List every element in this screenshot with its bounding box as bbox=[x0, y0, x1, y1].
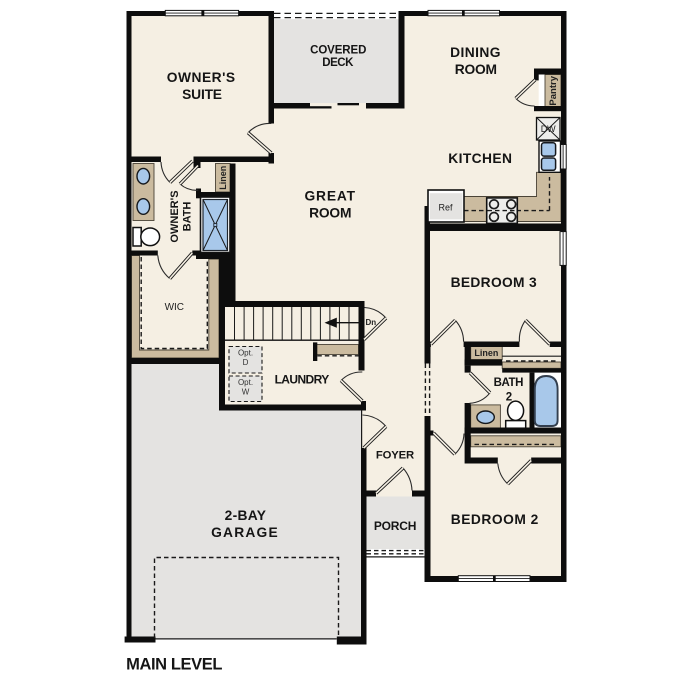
svg-text:2: 2 bbox=[506, 392, 512, 404]
svg-text:KITCHEN: KITCHEN bbox=[448, 151, 512, 166]
svg-text:GREAT: GREAT bbox=[304, 188, 356, 203]
svg-text:Pantry: Pantry bbox=[548, 75, 559, 105]
svg-text:DINING: DINING bbox=[450, 45, 501, 60]
svg-text:OWNER'S: OWNER'S bbox=[169, 190, 181, 242]
svg-text:Linen: Linen bbox=[218, 166, 228, 190]
svg-text:ROOM: ROOM bbox=[455, 62, 497, 77]
svg-text:OWNER'S: OWNER'S bbox=[167, 70, 236, 85]
svg-text:D: D bbox=[243, 358, 249, 367]
svg-text:FOYER: FOYER bbox=[376, 449, 414, 461]
svg-text:2-BAY: 2-BAY bbox=[225, 508, 267, 523]
svg-text:LAUNDRY: LAUNDRY bbox=[275, 373, 330, 387]
svg-text:W: W bbox=[242, 388, 250, 397]
svg-text:SUITE: SUITE bbox=[182, 87, 222, 102]
svg-text:BEDROOM 3: BEDROOM 3 bbox=[451, 275, 537, 290]
svg-text:BATH: BATH bbox=[494, 377, 523, 389]
svg-text:GARAGE: GARAGE bbox=[211, 525, 279, 540]
svg-text:BATH: BATH bbox=[181, 202, 193, 232]
svg-text:BEDROOM 2: BEDROOM 2 bbox=[451, 512, 539, 527]
svg-text:COVERED: COVERED bbox=[310, 45, 366, 57]
svg-text:DECK: DECK bbox=[322, 57, 354, 69]
svg-text:Opt.: Opt. bbox=[238, 349, 253, 358]
svg-text:Ref: Ref bbox=[438, 203, 453, 213]
svg-text:ROOM: ROOM bbox=[309, 206, 351, 221]
svg-text:DW: DW bbox=[541, 124, 556, 134]
svg-text:MAIN LEVEL: MAIN LEVEL bbox=[126, 655, 222, 673]
svg-text:Dn: Dn bbox=[365, 318, 376, 327]
svg-text:PORCH: PORCH bbox=[374, 519, 416, 533]
svg-text:Linen: Linen bbox=[474, 348, 498, 358]
svg-text:WIC: WIC bbox=[165, 302, 184, 313]
svg-text:Opt.: Opt. bbox=[238, 378, 253, 387]
